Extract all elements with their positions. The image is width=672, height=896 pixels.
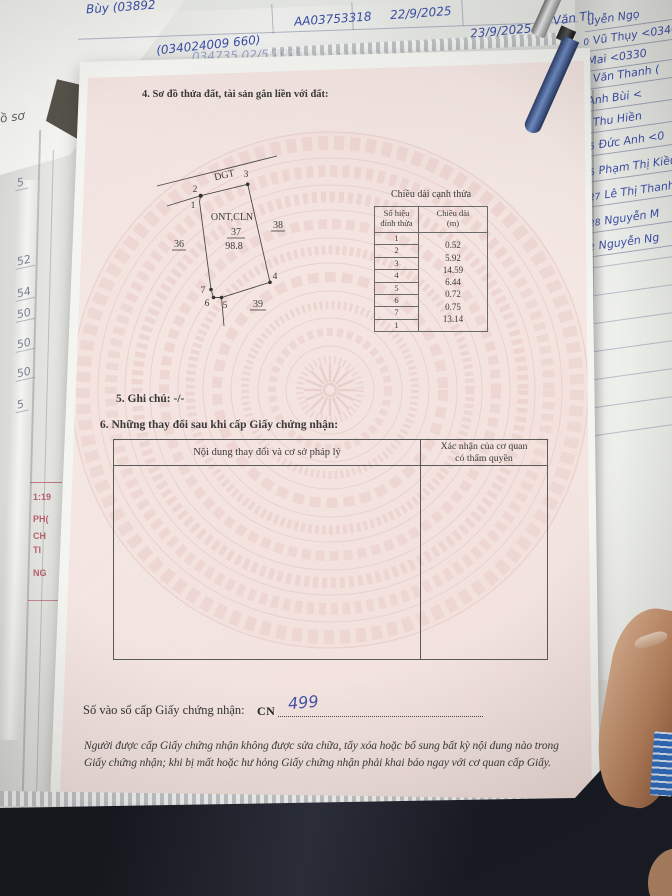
vertex-7-label: 7 (201, 286, 206, 296)
edge-table-vertex-cell: 3 (375, 257, 418, 269)
registry-line: Số vào sổ cấp Giấy chứng nhận: CN 499 (83, 700, 503, 726)
footer-note-line1: Người được cấp Giấy chứng nhận không đượ… (84, 740, 559, 752)
edge-table-length-cell: 5.92 (419, 252, 487, 264)
edge-table-vertex-cell: 6 (375, 294, 418, 306)
edge-length-table: Số hiệu đỉnh thửa Chiều dài (m) 12345671… (374, 206, 488, 332)
edge-table-vertex-cell: 1 (375, 233, 418, 244)
vertex-5-label: 5 (223, 301, 228, 311)
edge-table-length-cell: 0.72 (419, 288, 487, 300)
changes-table-col1-header: Nội dung thay đổi và cơ sở pháp lý (114, 440, 421, 465)
adjacent-parcel-38: 38 (273, 220, 283, 231)
edge-table-vertex-col: 12345671 (375, 233, 419, 331)
edge-table-vertex-cell: 1 (375, 319, 418, 331)
changes-table-col2-body (421, 466, 547, 659)
edge-table-title: Chiều dài cạnh thửa (374, 189, 488, 200)
section4-title: 4. Sơ đồ thửa đất, tài sản gắn liền với … (142, 89, 329, 100)
vertex-3-label: 3 (244, 170, 249, 180)
edge-table-length-cell: 6.44 (419, 276, 487, 288)
edge-table-length-cell: 0.52 (419, 239, 487, 251)
parcel-diagram: DGT 3 2 1 4 5 6 7 ONT,CLN 37 98.8 36 38 … (145, 150, 305, 340)
edge-table-length-cell: 14.59 (419, 264, 487, 276)
changes-table: Nội dung thay đổi và cơ sở pháp lý Xác n… (113, 439, 548, 660)
registry-handwritten-number: 499 (287, 692, 319, 714)
vertex-4-label: 4 (273, 272, 278, 282)
land-use-label: ONT,CLN (211, 212, 253, 223)
vertex-1-label: 1 (191, 201, 196, 211)
edge-table-length-col: 0.525.9214.596.440.720.7513.14 (419, 233, 487, 331)
edge-table-col1-header: Số hiệu đỉnh thửa (375, 207, 419, 232)
ballpoint-pen (536, 0, 646, 152)
parcel-number: 37 (231, 227, 241, 238)
photo-of-land-certificate: Bùy (03892(034024009 660)AA0375331822/9/… (0, 0, 672, 896)
edge-table-vertex-cell: 2 (375, 244, 418, 256)
vertex-2-label: 2 (193, 185, 198, 195)
footer-note-line2: Giấy chứng nhận; khi bị mất hoặc hư hỏng… (84, 757, 551, 769)
blue-sticker (650, 731, 672, 796)
parcel-area: 98.8 (225, 241, 243, 252)
edge-table-col2-header: Chiều dài (m) (419, 207, 487, 232)
edge-table-length-cell: 13.14 (419, 313, 487, 325)
changes-table-col1-body (114, 466, 421, 659)
registry-label: Số vào sổ cấp Giấy chứng nhận: (83, 703, 245, 718)
road-label: DGT (213, 168, 236, 183)
section6-title: 6. Những thay đổi sau khi cấp Giấy chứng… (100, 419, 338, 431)
section5-title: 5. Ghi chú: -/- (116, 393, 184, 405)
registry-prefix: CN (257, 704, 275, 719)
adjacent-parcel-36: 36 (174, 239, 184, 250)
changes-table-col2-header: Xác nhận của cơ quan có thẩm quyền (421, 440, 547, 465)
edge-table-length-cell: 0.75 (419, 301, 487, 313)
edge-table-vertex-cell: 4 (375, 269, 418, 281)
edge-table-vertex-cell: 5 (375, 282, 418, 294)
vertex-6-label: 6 (205, 299, 210, 309)
adjacent-parcel-39: 39 (253, 299, 263, 310)
edge-table-vertex-cell: 7 (375, 306, 418, 318)
